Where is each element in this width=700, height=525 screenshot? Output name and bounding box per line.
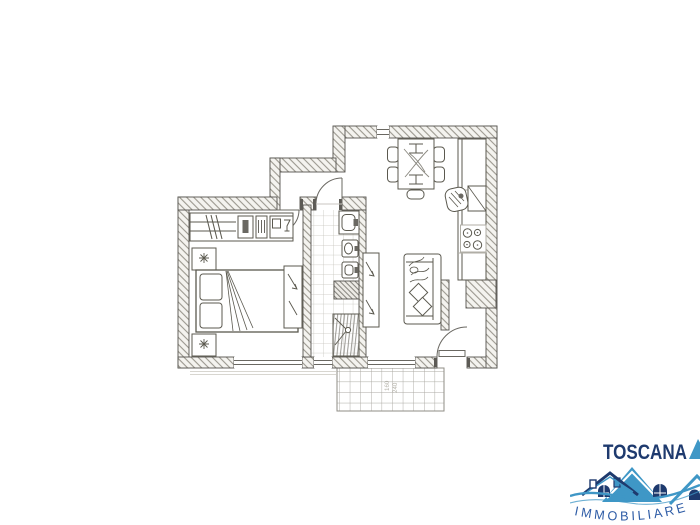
chair <box>388 167 399 182</box>
closet-cabinet <box>190 213 293 241</box>
wall-left <box>178 197 189 368</box>
bedroom-window <box>234 357 302 368</box>
wall-bottom-left <box>178 357 234 368</box>
bidet <box>342 240 358 257</box>
sideboard <box>363 253 379 327</box>
balcony-dim-label: 240 <box>392 382 399 393</box>
wall-pilaster <box>466 280 496 308</box>
entrance-door <box>437 327 467 357</box>
chair <box>388 147 399 162</box>
desk-unit <box>468 186 486 211</box>
balcony: 160 240 <box>337 368 444 411</box>
wall-bottom-pier3 <box>415 357 437 368</box>
window-sill-lines <box>190 372 336 375</box>
wall-bottom-pier2 <box>332 357 368 368</box>
scanned-floor-plan-page: 160 240 <box>0 0 700 525</box>
washbasin <box>339 211 359 234</box>
bathroom-door <box>316 178 342 204</box>
shower-drain <box>345 327 350 332</box>
double-bed <box>196 270 298 332</box>
bathroom-window <box>314 357 332 368</box>
bathroom-shaft <box>334 281 359 299</box>
bedroom-furniture <box>190 213 302 356</box>
wardrobe <box>284 266 302 328</box>
pillow <box>200 303 222 328</box>
nightstand-top <box>192 248 216 270</box>
chair <box>434 167 445 182</box>
logo-houses-icon <box>570 467 700 504</box>
chimney <box>590 480 596 488</box>
wall-right <box>486 126 497 368</box>
toscana-wordmark: TOSCANA <box>603 436 700 464</box>
end-seat <box>407 190 424 199</box>
stove-burners <box>461 225 487 252</box>
logo-swoosh-icon <box>689 436 700 459</box>
balcony-french-door <box>368 357 415 368</box>
chair <box>434 147 445 162</box>
living-room-top-window <box>377 126 389 138</box>
wall-top-b <box>389 126 497 138</box>
nightstand-bottom <box>192 334 216 356</box>
shower <box>333 314 359 356</box>
dining-table <box>388 139 445 199</box>
wall-bedroom-top <box>178 197 277 210</box>
wall-top-seg2 <box>342 197 366 210</box>
wall-bed-bath-divider <box>303 205 311 357</box>
wall-entry-stub <box>441 280 449 330</box>
brand-text: TOSCANA <box>603 441 687 464</box>
agency-logo: TOSCANA IMMOBILIARE <box>570 432 700 525</box>
wall-bottom-pier1 <box>302 357 314 368</box>
balcony-dim-label: 160 <box>384 380 391 391</box>
toilet <box>342 262 358 278</box>
pillow <box>200 274 222 300</box>
sofa <box>404 254 441 324</box>
